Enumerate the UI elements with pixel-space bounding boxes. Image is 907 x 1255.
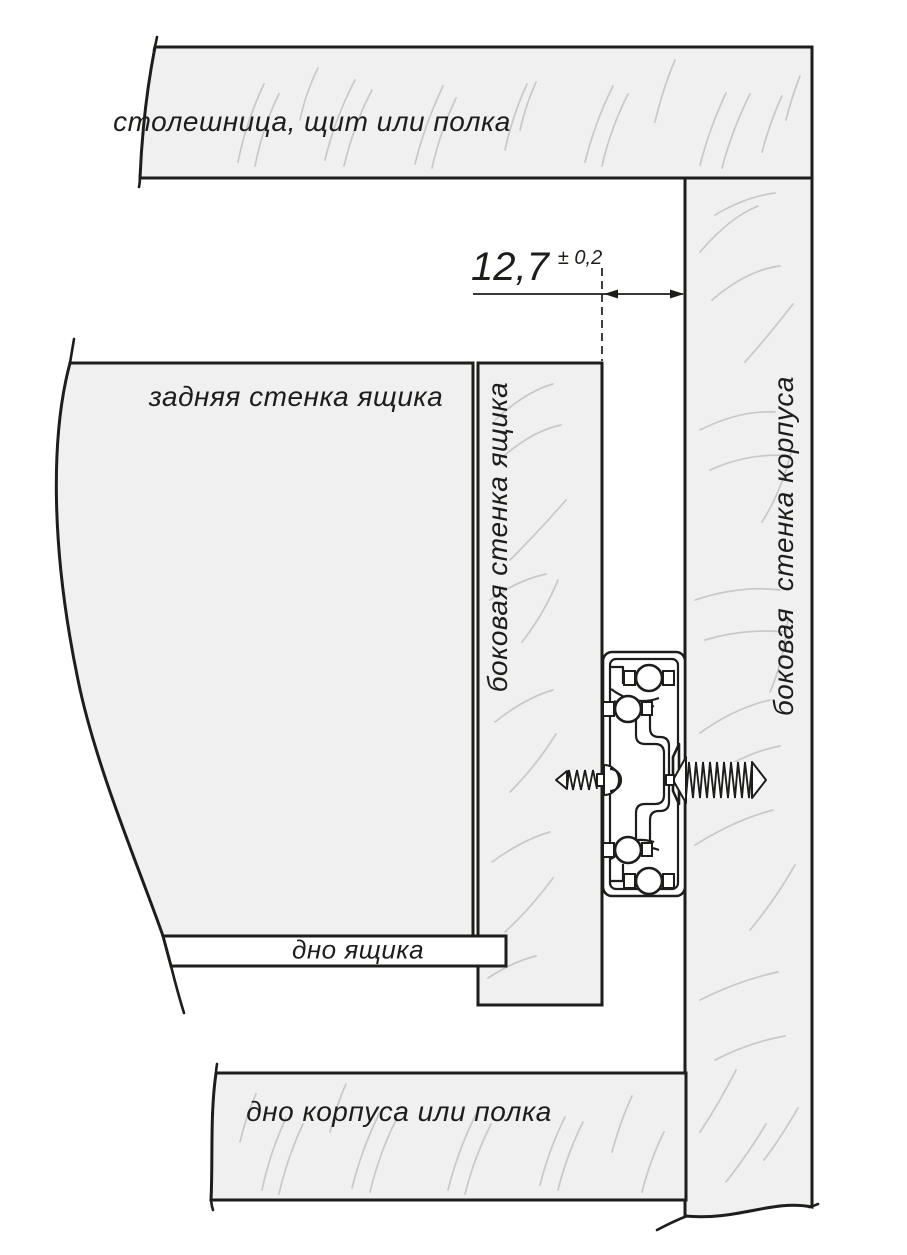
ball-bearing [615,696,641,722]
dimension-tolerance: ± 0,2 [558,248,602,268]
ball-bearing [636,868,662,894]
back-wall-shape [56,339,473,1013]
label-back-wall: задняя стенка ящика [149,381,443,413]
screw-right [666,757,766,803]
ball-bearing [636,665,662,691]
dimension-arrow-left [604,290,618,299]
drawer-slide-installation-diagram: столешница, щит или полка задняя стенка … [0,0,907,1255]
label-cabinet-bottom: дно корпуса или полка [246,1096,552,1128]
label-drawer-side-wall: боковая стенка ящика [482,382,514,692]
label-drawer-bottom: дно ящика [292,935,424,966]
label-top-panel: столешница, щит или полка [113,106,511,138]
dimension-arrow-right [670,290,684,299]
ball-bearing [615,837,641,863]
dimension-text: 12,7 ± 0,2 [471,247,602,287]
label-cabinet-side-wall: боковая стенка корпуса [768,376,800,716]
dimension-value: 12,7 [471,247,549,287]
